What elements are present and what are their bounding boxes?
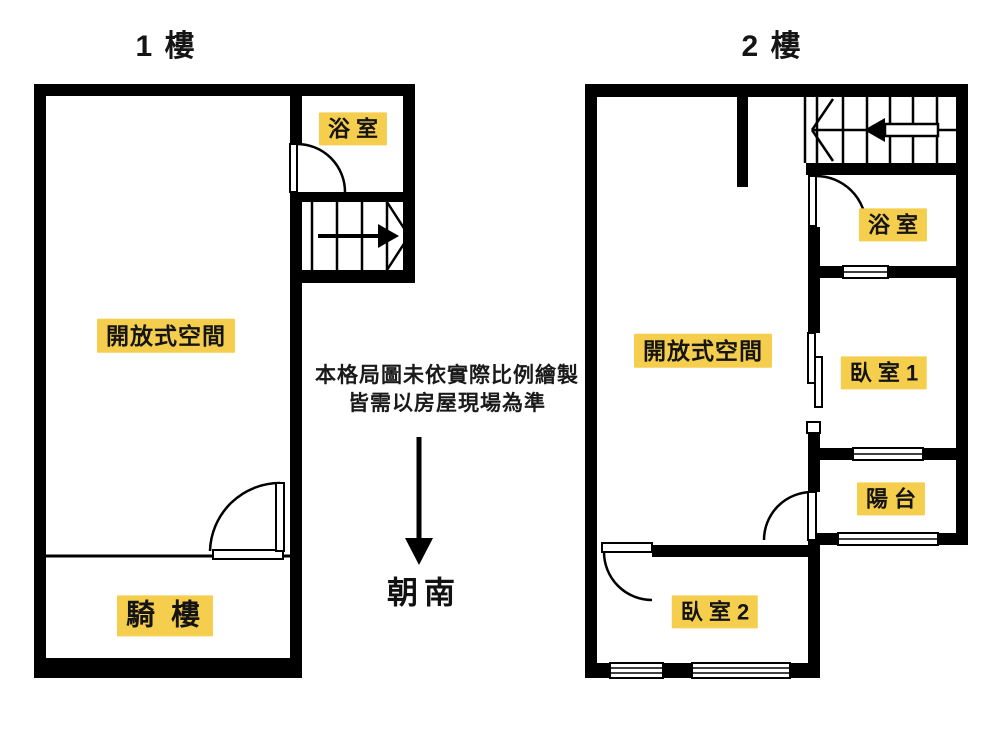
wall xyxy=(290,96,302,144)
wall xyxy=(585,84,597,678)
partition-wall xyxy=(737,97,748,187)
wall xyxy=(290,270,415,283)
disclaimer-line1: 本格局圖未依實際比例繪製 xyxy=(315,359,579,389)
door-swing-arc xyxy=(604,552,652,600)
sliding-door-end xyxy=(807,422,820,433)
floor2-bathroom-door xyxy=(809,176,866,226)
stair-arrow-left-icon xyxy=(864,118,938,142)
floor2-title: 2 樓 xyxy=(741,21,802,65)
door-leaf xyxy=(290,144,297,192)
wall xyxy=(956,84,968,545)
wall xyxy=(34,84,46,678)
window xyxy=(843,266,888,278)
room-label-floor1-arcade: 騎 樓 xyxy=(117,595,213,636)
floor1-bathroom-door xyxy=(290,144,345,192)
wall xyxy=(806,163,968,175)
wall xyxy=(290,192,415,202)
wall xyxy=(808,227,820,333)
door-leaf xyxy=(602,543,652,552)
arrow-head xyxy=(405,538,433,565)
wall xyxy=(34,84,415,96)
door-swing-arc xyxy=(764,492,812,540)
window xyxy=(610,663,663,678)
floor2-balcony-door xyxy=(764,492,816,540)
floor2-windows xyxy=(610,266,938,678)
door-swing-arc xyxy=(297,144,345,192)
south-arrow-icon xyxy=(405,437,433,565)
door-leaf xyxy=(276,483,284,551)
floor-plan-page: 1 樓 2 樓 浴 室 開放式空間 騎 樓 浴 室 開放式空間 臥 室 1 陽 … xyxy=(0,0,1000,743)
stair-break-chevron xyxy=(812,99,833,130)
sliding-door-panel xyxy=(815,357,822,407)
window xyxy=(838,533,938,545)
room-label-floor1-open-space: 開放式空間 xyxy=(97,319,235,353)
room-label-floor2-balcony: 陽 台 xyxy=(857,482,925,515)
wall xyxy=(652,545,820,557)
room-label-floor2-bedroom1: 臥 室 1 xyxy=(841,356,927,389)
door-leaf xyxy=(809,176,816,226)
door-leaf xyxy=(808,492,816,540)
stair-break-chevron xyxy=(812,130,833,161)
room-label-floor2-open-space: 開放式空間 xyxy=(634,334,772,368)
floor1-title: 1 樓 xyxy=(135,21,196,65)
floor2-sliding-door xyxy=(807,333,822,433)
sliding-door-panel xyxy=(808,333,815,383)
wall xyxy=(34,658,302,678)
room-label-floor2-bedroom2: 臥 室 2 xyxy=(672,595,758,628)
room-label-floor1-bathroom: 浴 室 xyxy=(319,112,387,145)
arrow-shaft xyxy=(885,124,938,136)
door-swing-arc xyxy=(210,483,280,551)
door-threshold xyxy=(213,550,283,559)
window xyxy=(692,663,790,678)
orientation-label: 朝南 xyxy=(387,568,461,613)
room-label-floor2-bathroom: 浴 室 xyxy=(859,208,927,241)
wall xyxy=(403,84,415,283)
wall xyxy=(808,545,820,678)
disclaimer-line2: 皆需以房屋現場為準 xyxy=(348,387,546,417)
window xyxy=(853,448,923,460)
wall xyxy=(808,433,820,492)
floor1-entrance-door xyxy=(46,483,290,559)
wall xyxy=(290,192,302,678)
floor2-bedroom2-door xyxy=(602,543,652,600)
arrow-head xyxy=(378,224,399,248)
wall xyxy=(585,84,968,97)
